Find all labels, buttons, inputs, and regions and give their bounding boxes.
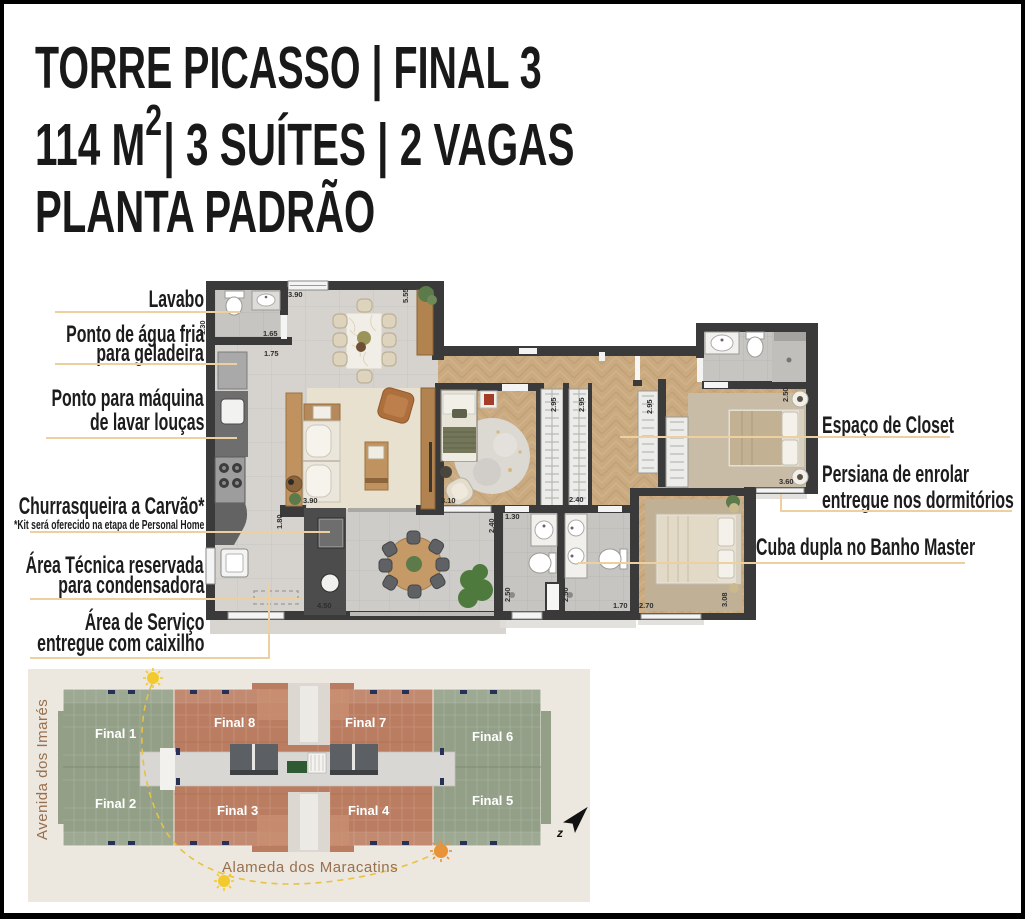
svg-text:3.08: 3.08: [720, 592, 729, 607]
svg-text:3.10: 3.10: [441, 496, 456, 505]
svg-text:2.95: 2.95: [577, 397, 586, 412]
svg-text:1.30: 1.30: [505, 512, 520, 521]
svg-text:2.40: 2.40: [569, 495, 584, 504]
svg-text:2.50: 2.50: [503, 587, 512, 602]
svg-text:2.50: 2.50: [781, 387, 790, 402]
svg-text:3.90: 3.90: [288, 290, 303, 299]
svg-text:5.55: 5.55: [401, 288, 410, 303]
svg-text:1.65: 1.65: [263, 329, 278, 338]
svg-text:2.95: 2.95: [645, 399, 654, 414]
svg-text:1.30: 1.30: [198, 320, 207, 335]
svg-text:1.70: 1.70: [613, 601, 628, 610]
svg-text:2.40: 2.40: [487, 518, 496, 533]
svg-text:2.95: 2.95: [549, 397, 558, 412]
svg-text:1.75: 1.75: [264, 349, 279, 358]
svg-text:4.50: 4.50: [317, 601, 332, 610]
svg-text:3.90: 3.90: [303, 496, 318, 505]
svg-text:2.70: 2.70: [639, 601, 654, 610]
svg-text:1.80: 1.80: [275, 514, 284, 529]
svg-text:3.60: 3.60: [779, 477, 794, 486]
svg-text:2.50: 2.50: [561, 587, 570, 602]
